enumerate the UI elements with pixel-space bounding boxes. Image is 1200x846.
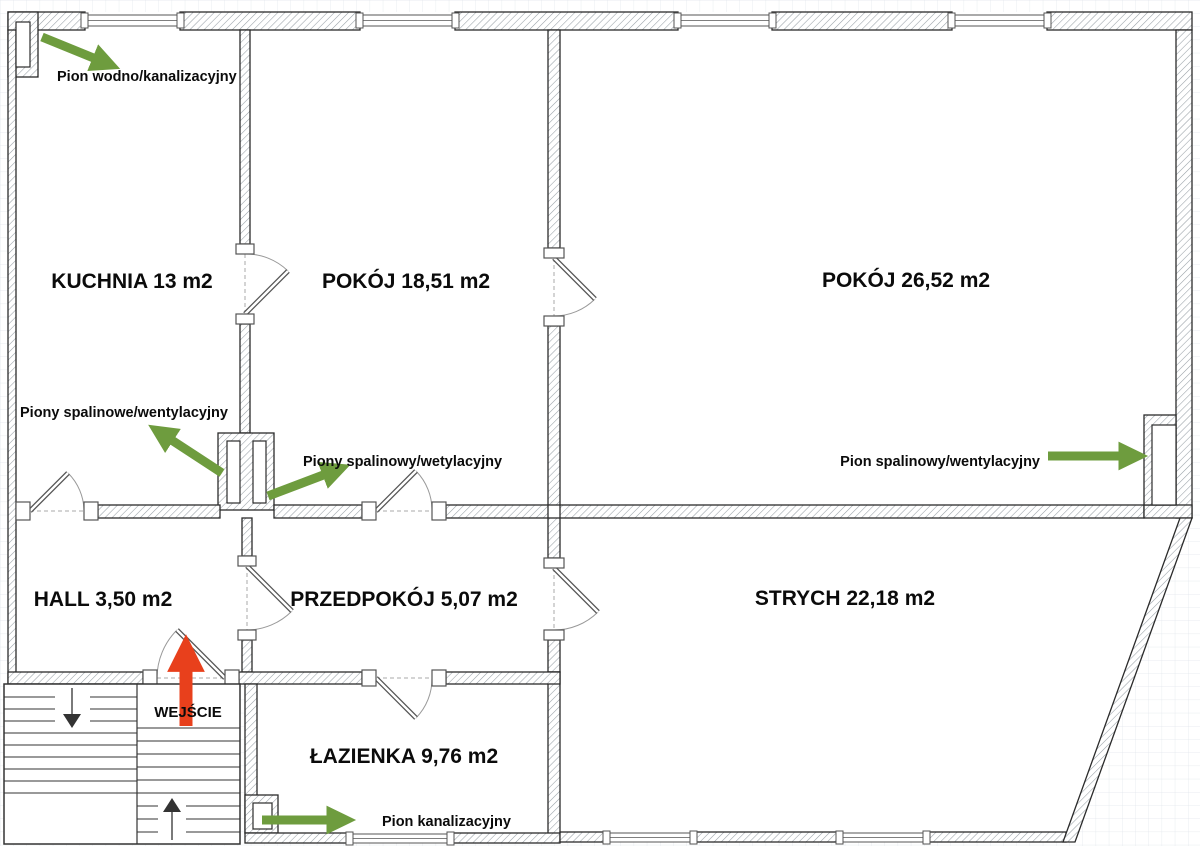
room-label-strych: STRYCH 22,18 m2: [755, 587, 935, 610]
water-sewer-riser-shaft: [16, 22, 30, 67]
chimney-shaft-right: [253, 441, 266, 503]
flue-vent-shaft-right: [1152, 425, 1176, 505]
floor-plan: KUCHNIA 13 m2 POKÓJ 18,51 m2 POKÓJ 26,52…: [0, 0, 1200, 846]
chimney-shaft-left: [227, 441, 240, 503]
room-label-kuchnia: KUCHNIA 13 m2: [51, 270, 212, 293]
room-label-pokoj-2: POKÓJ 26,52 m2: [822, 268, 990, 292]
window-lazienka: [346, 832, 454, 845]
annotation-piony-spalinowy: Piony spalinowy/wetylacyjny: [303, 454, 502, 470]
window-kuchnia: [81, 13, 184, 28]
annotation-pion-wodno: Pion wodno/kanalizacyjny: [57, 69, 237, 85]
room-label-lazienka: ŁAZIENKA 9,76 m2: [310, 745, 498, 768]
floor-plan-page: KUCHNIA 13 m2 POKÓJ 18,51 m2 POKÓJ 26,52…: [0, 0, 1200, 846]
annotation-piony-spalinowe: Piony spalinowe/wentylacyjny: [20, 405, 228, 421]
annotation-pion-kanalizacyjny: Pion kanalizacyjny: [382, 814, 511, 830]
room-label-przedpokoj: PRZEDPOKÓJ 5,07 m2: [290, 587, 518, 611]
window-strych-a: [603, 831, 697, 844]
window-strych-b: [836, 831, 930, 844]
entrance-label: WEJŚCIE: [154, 703, 222, 721]
window-pokoj-1: [356, 13, 459, 28]
window-pokoj-2-b: [948, 13, 1051, 28]
room-label-hall: HALL 3,50 m2: [34, 588, 173, 611]
room-label-pokoj-1: POKÓJ 18,51 m2: [322, 269, 490, 293]
annotation-pion-spalinowy: Pion spalinowy/wentylacyjny: [840, 454, 1040, 470]
window-pokoj-2-a: [674, 13, 776, 28]
